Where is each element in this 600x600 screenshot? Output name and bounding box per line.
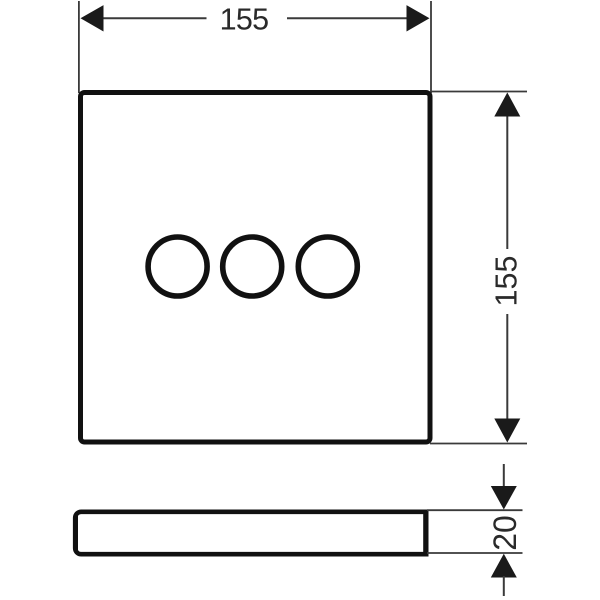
svg-text:155: 155 <box>220 3 269 37</box>
svg-text:155: 155 <box>490 256 524 307</box>
svg-text:20: 20 <box>487 515 523 551</box>
